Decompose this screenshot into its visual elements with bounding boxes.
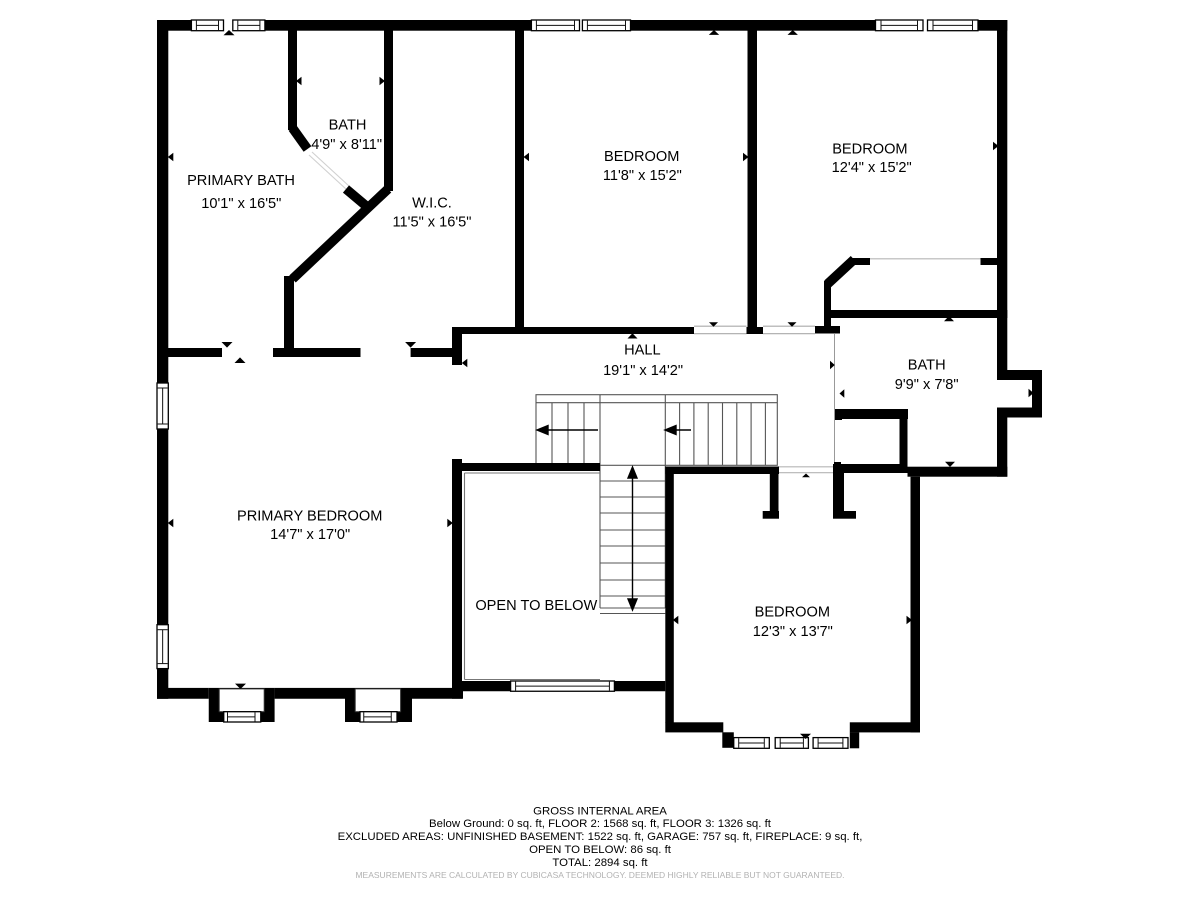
svg-text:11'5" x 16'5": 11'5" x 16'5": [393, 214, 472, 230]
svg-text:BEDROOM: BEDROOM: [604, 149, 679, 165]
svg-text:TOTAL: 2894 sq. ft: TOTAL: 2894 sq. ft: [552, 857, 648, 869]
svg-text:12'3" x 13'7": 12'3" x 13'7": [753, 624, 833, 640]
svg-text:BATH: BATH: [908, 357, 946, 373]
svg-text:EXCLUDED AREAS: UNFINISHED BAS: EXCLUDED AREAS: UNFINISHED BASEMENT: 152…: [338, 831, 863, 843]
svg-text:11'8" x 15'2": 11'8" x 15'2": [603, 168, 682, 184]
svg-text:BEDROOM: BEDROOM: [832, 141, 907, 157]
svg-text:GROSS INTERNAL AREA: GROSS INTERNAL AREA: [533, 806, 667, 818]
svg-text:BATH: BATH: [329, 118, 367, 134]
svg-text:HALL: HALL: [624, 343, 661, 359]
svg-text:MEASUREMENTS ARE CALCULATED BY: MEASUREMENTS ARE CALCULATED BY CUBICASA …: [355, 870, 844, 880]
svg-text:14'7" x 17'0": 14'7" x 17'0": [270, 527, 350, 543]
svg-text:OPEN TO BELOW: 86 sq. ft: OPEN TO BELOW: 86 sq. ft: [529, 844, 672, 856]
svg-text:12'4" x 15'2": 12'4" x 15'2": [832, 160, 912, 176]
svg-text:9'9" x 7'8": 9'9" x 7'8": [895, 377, 959, 393]
svg-text:PRIMARY BEDROOM: PRIMARY BEDROOM: [237, 509, 382, 525]
svg-text:19'1" x 14'2": 19'1" x 14'2": [603, 363, 683, 379]
svg-text:PRIMARY BATH: PRIMARY BATH: [187, 173, 295, 189]
svg-text:OPEN TO BELOW: OPEN TO BELOW: [475, 598, 597, 614]
svg-text:Below Ground: 0 sq. ft, FLOOR: Below Ground: 0 sq. ft, FLOOR 2: 1568 sq…: [429, 818, 772, 830]
svg-text:BEDROOM: BEDROOM: [755, 604, 830, 620]
svg-text:10'1" x 16'5": 10'1" x 16'5": [201, 196, 281, 212]
svg-text:4'9" x 8'11": 4'9" x 8'11": [311, 137, 382, 153]
svg-text:W.I.C.: W.I.C.: [412, 195, 452, 211]
